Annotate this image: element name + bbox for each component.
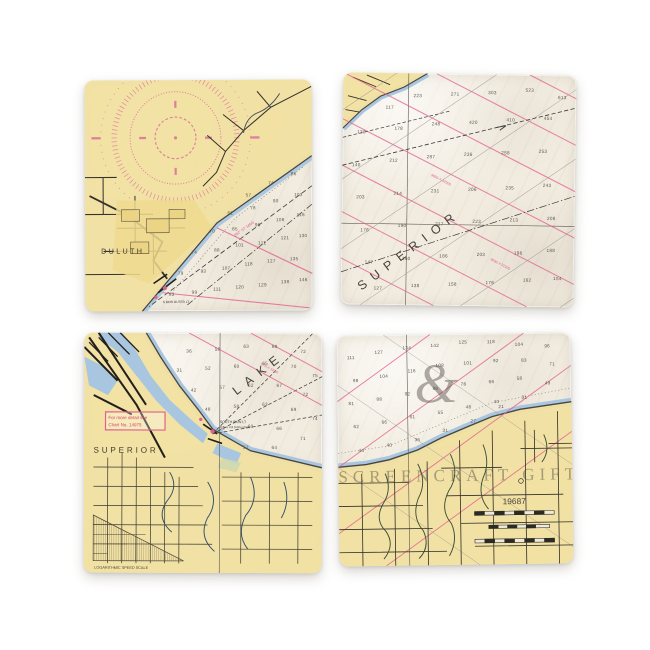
note-line2: Chart No. 14975 (108, 422, 142, 427)
lake-name-label: SUPERIOR (355, 207, 463, 294)
coaster-bottom-left: For more detail see Chart No. 14975 SUPE… (84, 333, 323, 574)
light-detail: Fl G 4s 52ft 26StM HORN (220, 425, 250, 429)
coaster-bottom-right: 19687 1111271341421251181049698104116108… (336, 332, 573, 566)
coaster-set-photo: DULUTH 252° 57' MAG S BKW OUTER LT 57748… (0, 0, 650, 650)
note-line1: For more detail see (108, 415, 147, 420)
course-lines (341, 105, 576, 275)
loran-label: 9930-Y-31500 (490, 257, 511, 270)
lake-name-label: LAKE (230, 348, 288, 397)
city-label: DULUTH (101, 246, 144, 255)
map-superior: For more detail see Chart No. 14975 SUPE… (84, 333, 323, 574)
coaster-top-right: SUPERIOR 9930-X-32000 9930-Y-31500 11722… (340, 72, 576, 307)
course-label: 252° 57' MAG (233, 220, 255, 238)
light-label: S BKW OUTER LT (163, 300, 190, 304)
map-lake-superior: SUPERIOR 9930-X-32000 9930-Y-31500 (340, 72, 576, 307)
note-box: For more detail see Chart No. 14975 (106, 412, 166, 430)
watermark-text: SCREENCRAFT GIFTS (338, 464, 572, 487)
loran-label: 9930-X-32000 (430, 173, 451, 187)
light-label: SOUTH BKW LT (220, 420, 247, 424)
scale-caption: LOGARITHMIC SPEED SCALE (94, 566, 148, 570)
map-duluth: DULUTH 252° 57' MAG S BKW OUTER LT (84, 79, 312, 311)
chart-number: 19687 (502, 496, 526, 506)
city-label: SUPERIOR (94, 446, 159, 455)
coaster-top-left: DULUTH 252° 57' MAG S BKW OUTER LT 57748… (84, 79, 312, 311)
watermark-logo: & (414, 352, 458, 417)
